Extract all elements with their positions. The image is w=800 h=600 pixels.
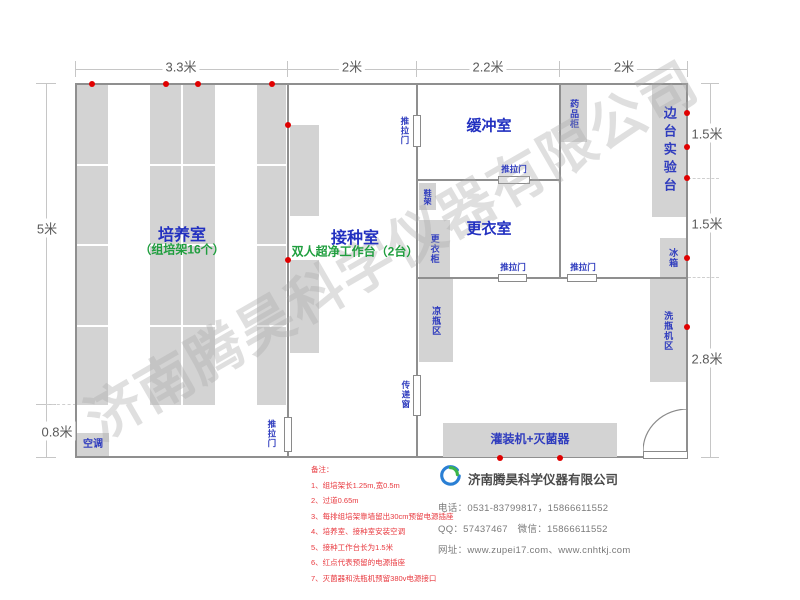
dim-tick: [701, 457, 719, 458]
note-item: 2、过道0.65m: [311, 493, 454, 509]
power-socket-dot: [285, 122, 291, 128]
wall-dressing-bottom: [417, 277, 688, 279]
room-label-buffer: 缓冲室: [466, 115, 511, 136]
note-item: 5、接种工作台长为1.5米: [311, 540, 454, 556]
power-socket-dot: [557, 455, 563, 461]
dim-right-1: 1.5米: [688, 124, 725, 143]
floor-plan-page: 3.3米 2米 2.2米 2米 5米 0.8米 1.5米 1.5米 2.8米 空…: [0, 0, 800, 600]
shoe-rack: 鞋架: [419, 183, 436, 210]
swing-door-arc: [643, 409, 688, 452]
room-label-dressing: 更衣室: [466, 218, 511, 239]
note-item: 6、红点代表预留的电源插座: [311, 555, 454, 571]
dim-top-1: 3.3米: [162, 57, 199, 76]
sliding-door-label: 推拉门: [399, 117, 409, 146]
company-name: 济南腾昊科学仪器有限公司: [468, 469, 618, 488]
note-item: 4、培养室、接种室安装空调: [311, 524, 454, 540]
dim-tick: [36, 83, 56, 84]
wardrobe: 更衣柜: [419, 220, 450, 277]
notes-title: 备注：: [311, 462, 454, 478]
clean-bench-1: [290, 125, 319, 216]
company-website: 网址：www.zupei17.com、www.cnhtkj.com: [438, 542, 631, 556]
dim-tick: [287, 61, 288, 77]
side-bench: 边台实验台: [652, 85, 686, 217]
sliding-door-label: 推拉门: [266, 420, 276, 449]
power-socket-dot: [497, 455, 503, 461]
dim-left-height: 5米: [34, 219, 60, 238]
dim-tick: [688, 178, 719, 179]
room-sub-inoculation: 双人超净工作台（2台）: [292, 243, 419, 260]
room-sub-cultivation: （组培架16个）: [139, 241, 224, 258]
power-socket-dot: [269, 81, 275, 87]
dim-line-left: [46, 83, 47, 458]
filler-sterilizer-label: 灌装机+灭菌器: [490, 433, 569, 447]
bottle-washer-area-label: 洗瓶机区: [663, 311, 673, 351]
cooling-bottle-area-label: 凉瓶区: [431, 306, 441, 336]
sliding-door: [498, 274, 527, 282]
dim-tick: [75, 61, 76, 77]
company-logo-icon: [438, 464, 462, 493]
power-socket-dot: [89, 81, 95, 87]
sliding-door: [284, 417, 292, 452]
dim-tick: [559, 61, 560, 77]
sliding-door-label: 推拉门: [500, 263, 526, 273]
dim-tick: [416, 61, 417, 77]
sliding-door: [498, 176, 530, 184]
dim-top-2: 2米: [339, 57, 365, 76]
power-socket-dot: [684, 175, 690, 181]
cooling-bottle-area: 凉瓶区: [419, 279, 453, 362]
fridge-label: 冰箱: [668, 248, 678, 268]
power-socket-dot: [684, 255, 690, 261]
bottle-washer-area: 洗瓶机区: [650, 279, 686, 382]
medicine-cabinet-label: 药品柜: [569, 99, 579, 129]
dim-extension: [46, 404, 76, 405]
power-socket-dot: [684, 110, 690, 116]
air-conditioner-label: 空调: [83, 439, 103, 451]
sliding-door: [413, 115, 421, 147]
power-socket-dot: [684, 324, 690, 330]
dim-right-2: 1.5米: [688, 214, 725, 233]
dim-top-3: 2.2米: [469, 57, 506, 76]
dim-tick: [688, 277, 719, 278]
transfer-window: [413, 375, 421, 416]
wall-buffer-dressing: [417, 179, 561, 181]
notes-block: 备注： 1、组培架长1.25m,宽0.5m 2、过道0.65m 3、每排组培架靠…: [311, 462, 454, 586]
shoe-rack-label: 鞋架: [423, 189, 432, 205]
entrance-door-leaf: [643, 451, 688, 459]
sliding-door-label: 推拉门: [501, 165, 527, 175]
note-item: 1、组培架长1.25m,宽0.5m: [311, 478, 454, 494]
dim-tick: [36, 457, 56, 458]
note-item: 3、每排组培架靠墙留出30cm预留电源插座: [311, 509, 454, 525]
air-conditioner: 空调: [77, 433, 109, 456]
power-socket-dot: [684, 144, 690, 150]
power-socket-dot: [195, 81, 201, 87]
power-socket-dot: [163, 81, 169, 87]
wardrobe-label: 更衣柜: [429, 234, 439, 264]
clean-bench-2: [290, 260, 319, 353]
company-qq-wechat: QQ：57437467 微信：15866611552: [438, 521, 631, 535]
note-item: 7、灭菌器和洗瓶机预留380v电源接口: [311, 571, 454, 587]
dim-tick: [701, 83, 719, 84]
wall-cultivation-inoculation: [287, 83, 289, 458]
power-socket-dot: [285, 257, 291, 263]
dim-top-4: 2米: [611, 57, 637, 76]
company-block: 济南腾昊科学仪器有限公司 电话：0531-83799817，1586661155…: [438, 464, 631, 556]
fridge: 冰箱: [660, 238, 686, 277]
sliding-door-label: 推拉门: [570, 263, 596, 273]
dim-left-aisle: 0.8米: [38, 422, 75, 441]
shelf-column: [257, 85, 286, 405]
side-bench-label: 边台实验台: [657, 106, 680, 196]
dim-tick: [687, 61, 688, 77]
medicine-cabinet: 药品柜: [561, 85, 587, 142]
dim-right-3: 2.8米: [688, 349, 725, 368]
filler-sterilizer: 灌装机+灭菌器: [443, 423, 617, 457]
company-phone: 电话：0531-83799817，15866611552: [438, 500, 631, 514]
transfer-window-label: 传递窗: [400, 381, 410, 410]
shelf-column: [77, 85, 108, 405]
sliding-door: [567, 274, 597, 282]
